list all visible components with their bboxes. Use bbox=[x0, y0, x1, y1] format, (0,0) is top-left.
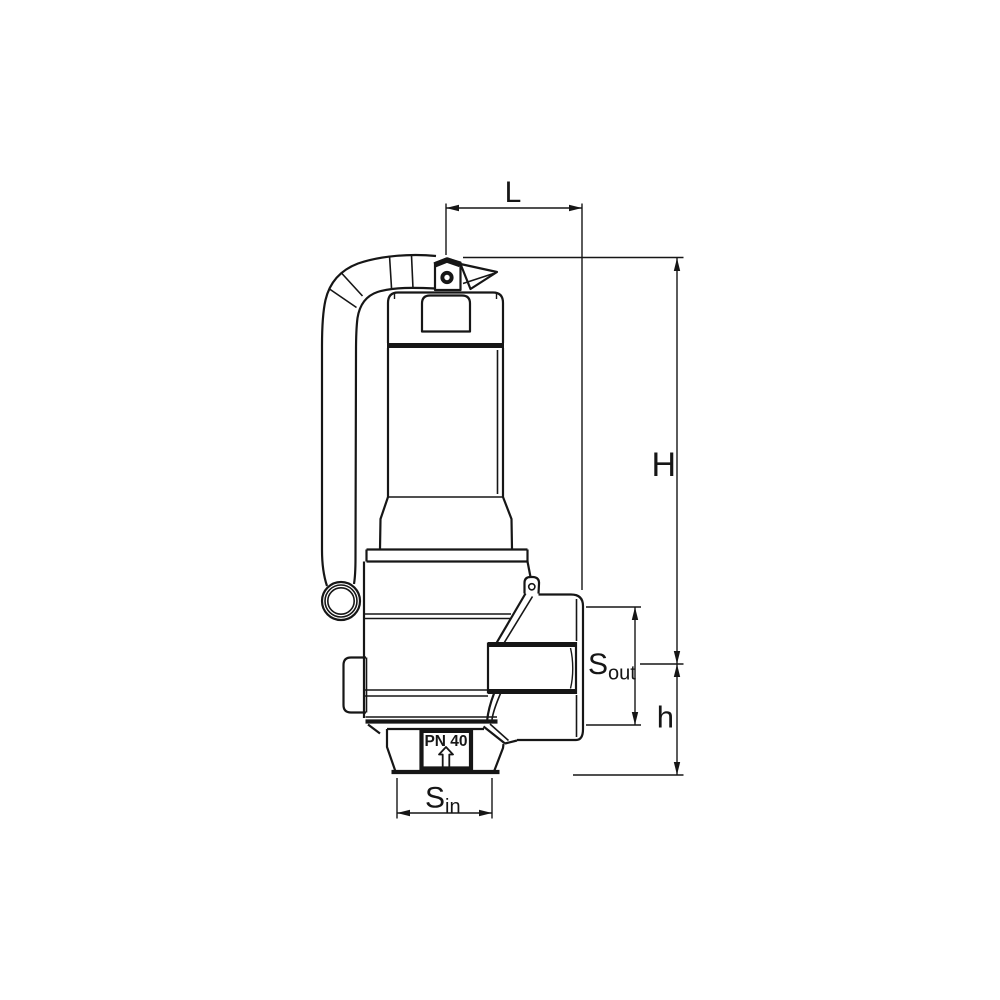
lever-segment-tick bbox=[390, 256, 392, 289]
dim-H: H bbox=[463, 258, 684, 665]
flow-direction-arrow-icon bbox=[439, 747, 453, 769]
lever-segment-tick bbox=[330, 289, 357, 308]
valve-dimension-drawing: PN 40 L H h Sout bbox=[0, 0, 1000, 1000]
dim-h-arrow-bottom bbox=[674, 762, 680, 775]
dim-label-Sout: Sout bbox=[588, 648, 636, 685]
nut-right-edge bbox=[494, 744, 504, 772]
lever-ring-inner bbox=[328, 588, 354, 614]
dim-Sin-arrow-left bbox=[397, 810, 410, 816]
lever-outer-edge bbox=[322, 255, 436, 586]
valve-dimension-drawing-sheet: PN 40 L H h Sout bbox=[0, 0, 1000, 1000]
dim-L-arrow-right bbox=[569, 205, 582, 211]
pn-rating-plate: PN 40 bbox=[422, 730, 472, 770]
dim-label-Sout-main: S bbox=[588, 648, 608, 681]
pivot-block bbox=[435, 259, 461, 291]
dim-label-H: H bbox=[651, 446, 676, 484]
lever-segment-tick bbox=[341, 273, 363, 297]
fixing-screw-tab bbox=[525, 577, 540, 594]
dim-h-arrow-top bbox=[674, 664, 680, 677]
dim-H-arrow-bottom bbox=[674, 651, 680, 664]
dim-label-Sin: Sin bbox=[425, 782, 461, 819]
outlet-port-shade-line bbox=[571, 648, 573, 689]
dim-H-arrow-top bbox=[674, 258, 680, 271]
dim-L: L bbox=[446, 176, 582, 590]
bonnet-flange bbox=[367, 550, 528, 562]
side-boss-outline bbox=[344, 658, 367, 713]
latch-inner-line bbox=[463, 274, 494, 284]
outlet-shoulder-line bbox=[503, 597, 533, 646]
fixing-screw-head-icon bbox=[529, 584, 535, 590]
latch-pennant bbox=[461, 264, 498, 289]
test-latch bbox=[461, 264, 498, 289]
dim-Sout-arrow-bottom bbox=[632, 712, 638, 725]
bonnet-cap bbox=[387, 293, 504, 346]
tube-right-edge bbox=[503, 348, 512, 549]
spout-wedge-join bbox=[505, 741, 517, 744]
tube-left-edge bbox=[380, 348, 388, 549]
lever-ring-middle bbox=[325, 585, 357, 617]
valve-body bbox=[344, 562, 518, 744]
nut-left-edge bbox=[387, 729, 396, 772]
dim-L-arrow-left bbox=[446, 205, 459, 211]
bonnet-cap-outline bbox=[388, 293, 503, 344]
outlet-neck-line bbox=[528, 562, 531, 578]
dim-label-Sin-main: S bbox=[425, 782, 445, 815]
lever-segment-tick bbox=[412, 256, 414, 289]
lever-ring bbox=[322, 582, 360, 620]
dim-label-Sin-sub: in bbox=[445, 796, 461, 818]
dim-label-h: h bbox=[657, 700, 674, 735]
dim-Sout-arrow-top bbox=[632, 607, 638, 620]
nameplate bbox=[422, 296, 470, 332]
base-left-taper bbox=[368, 725, 380, 734]
dim-label-L: L bbox=[505, 176, 522, 209]
pivot-pin-hole bbox=[444, 275, 449, 280]
inlet-hex-nut: PN 40 bbox=[387, 729, 504, 772]
fixing-screw bbox=[525, 577, 540, 594]
lever-group bbox=[322, 255, 436, 620]
pivot-cap bbox=[435, 260, 461, 265]
spring-tube bbox=[380, 348, 512, 549]
dim-Sin-arrow-right bbox=[479, 810, 492, 816]
dim-label-Sout-sub: out bbox=[608, 663, 636, 685]
outlet-port bbox=[488, 642, 576, 694]
outlet-flange bbox=[488, 562, 583, 741]
dim-Sin: Sin bbox=[397, 778, 492, 819]
